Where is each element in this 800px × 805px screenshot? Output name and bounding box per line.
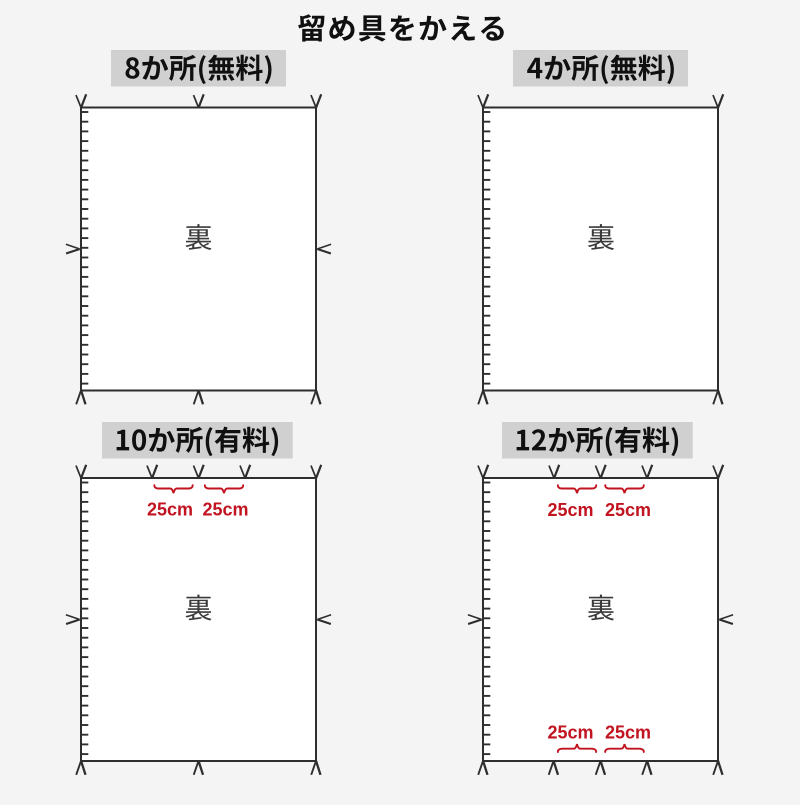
svg-text:25cm: 25cm: [547, 500, 593, 520]
svg-text:25cm: 25cm: [605, 500, 651, 520]
svg-text:25cm: 25cm: [147, 500, 193, 520]
svg-text:25cm: 25cm: [605, 723, 651, 743]
svg-text:25cm: 25cm: [547, 723, 593, 743]
svg-text:25cm: 25cm: [202, 500, 248, 520]
